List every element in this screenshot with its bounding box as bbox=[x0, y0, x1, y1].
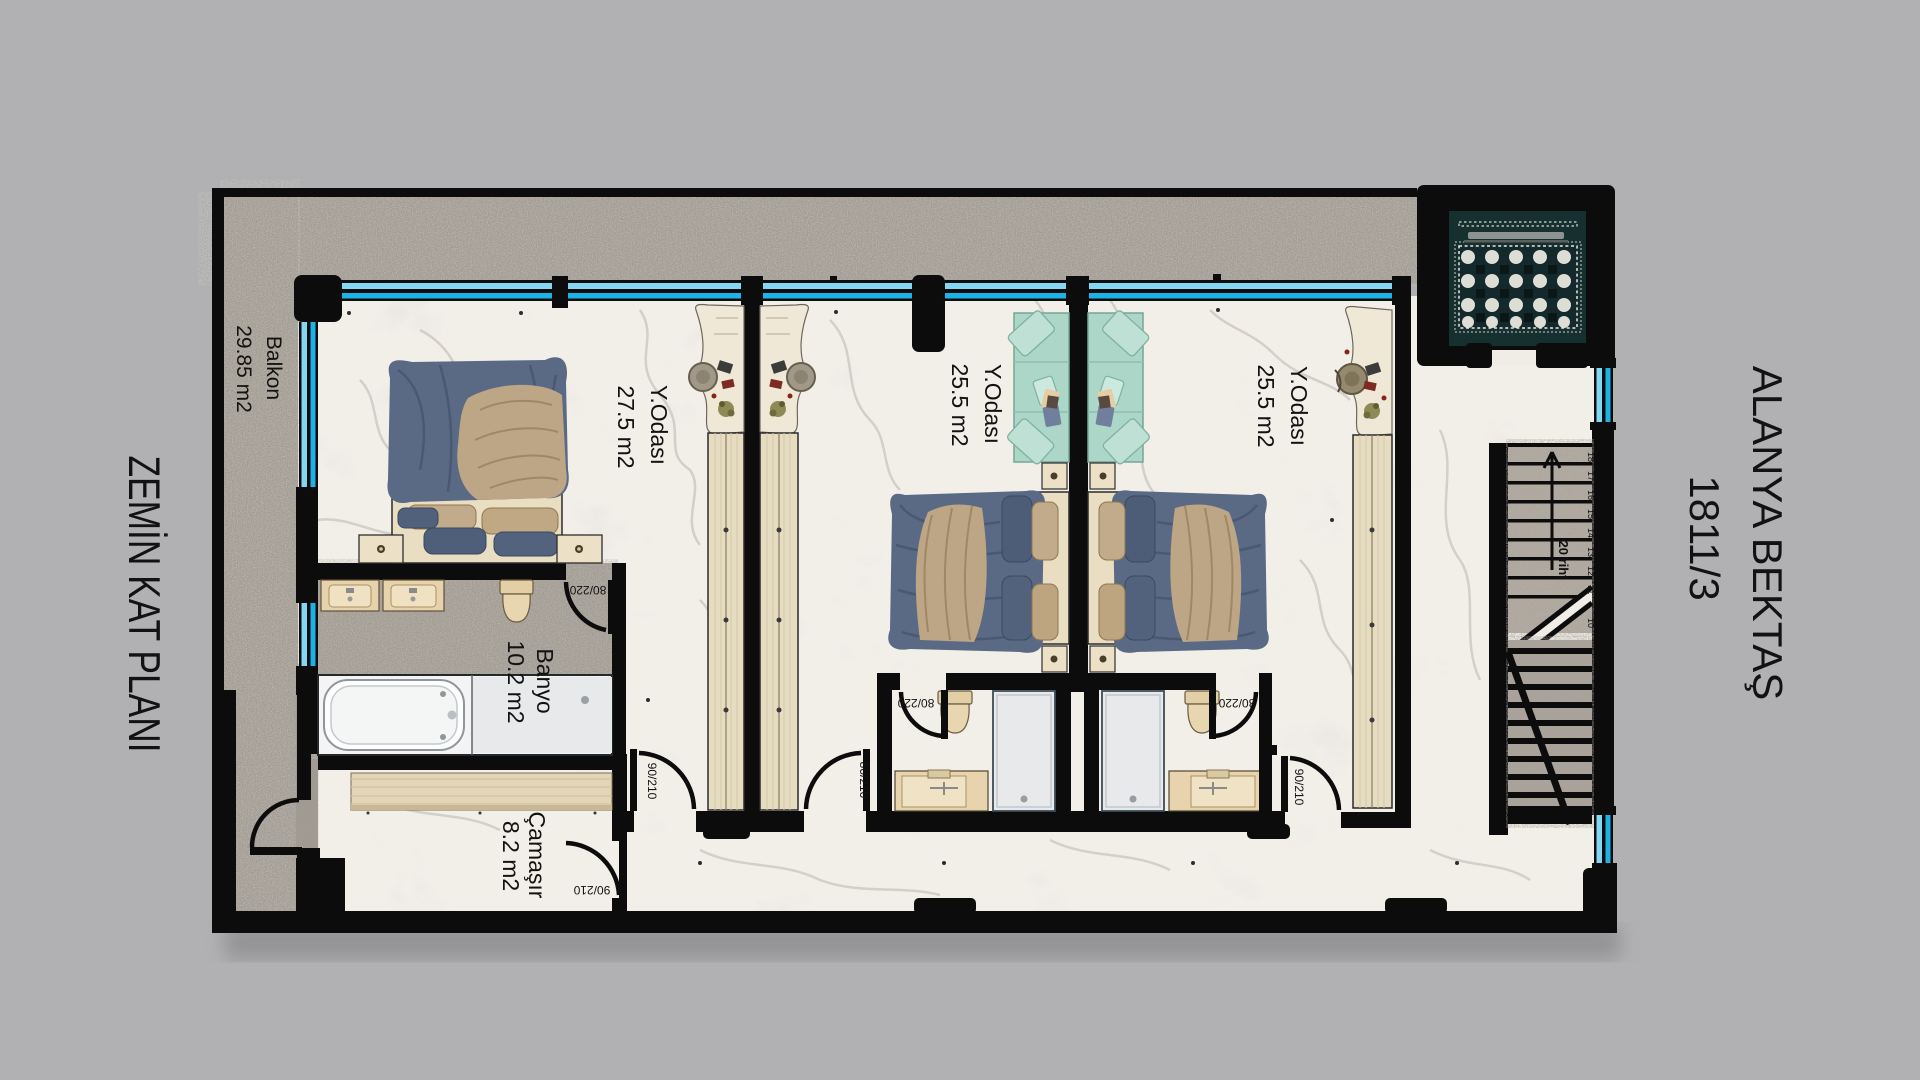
svg-text:25.5 m2: 25.5 m2 bbox=[947, 363, 973, 446]
svg-text:80/220: 80/220 bbox=[1218, 696, 1255, 710]
svg-text:ALANYA BEKTAŞ: ALANYA BEKTAŞ bbox=[1744, 366, 1791, 701]
svg-text:10.2 m2: 10.2 m2 bbox=[503, 640, 529, 723]
svg-text:14: 14 bbox=[1586, 528, 1596, 538]
svg-text:ZEMİN KAT PLANI: ZEMİN KAT PLANI bbox=[119, 455, 169, 752]
svg-text:11: 11 bbox=[1586, 585, 1596, 594]
svg-text:20 riht: 20 riht bbox=[1556, 540, 1571, 580]
svg-text:1811/3: 1811/3 bbox=[1681, 475, 1728, 600]
svg-text:Çamaşır: Çamaşır bbox=[524, 812, 550, 899]
svg-text:80/220: 80/220 bbox=[897, 696, 934, 710]
svg-text:80/220: 80/220 bbox=[569, 583, 606, 597]
svg-text:80/210: 80/210 bbox=[857, 762, 871, 799]
svg-text:Banyo: Banyo bbox=[532, 648, 558, 713]
svg-text:Y.Odası: Y.Odası bbox=[646, 385, 672, 465]
svg-text:25.5 m2: 25.5 m2 bbox=[1253, 364, 1279, 447]
svg-text:8.2 m2: 8.2 m2 bbox=[498, 821, 524, 891]
svg-text:90/210: 90/210 bbox=[573, 883, 610, 897]
svg-text:10: 10 bbox=[1586, 618, 1596, 628]
svg-text:Y.Odası: Y.Odası bbox=[1286, 366, 1312, 446]
svg-text:18: 18 bbox=[1586, 452, 1596, 462]
svg-text:29.85 m2: 29.85 m2 bbox=[232, 325, 255, 413]
svg-text:90/210: 90/210 bbox=[1292, 769, 1306, 806]
svg-text:90/210: 90/210 bbox=[645, 763, 659, 800]
svg-text:13: 13 bbox=[1586, 547, 1596, 557]
svg-text:15: 15 bbox=[1586, 509, 1596, 519]
svg-text:Y.Odası: Y.Odası bbox=[980, 364, 1006, 444]
svg-text:27.5 m2: 27.5 m2 bbox=[613, 385, 639, 468]
svg-text:16: 16 bbox=[1586, 490, 1596, 500]
svg-text:17: 17 bbox=[1586, 471, 1596, 481]
svg-text:12: 12 bbox=[1586, 566, 1596, 576]
svg-text:Balkon: Balkon bbox=[262, 336, 285, 400]
